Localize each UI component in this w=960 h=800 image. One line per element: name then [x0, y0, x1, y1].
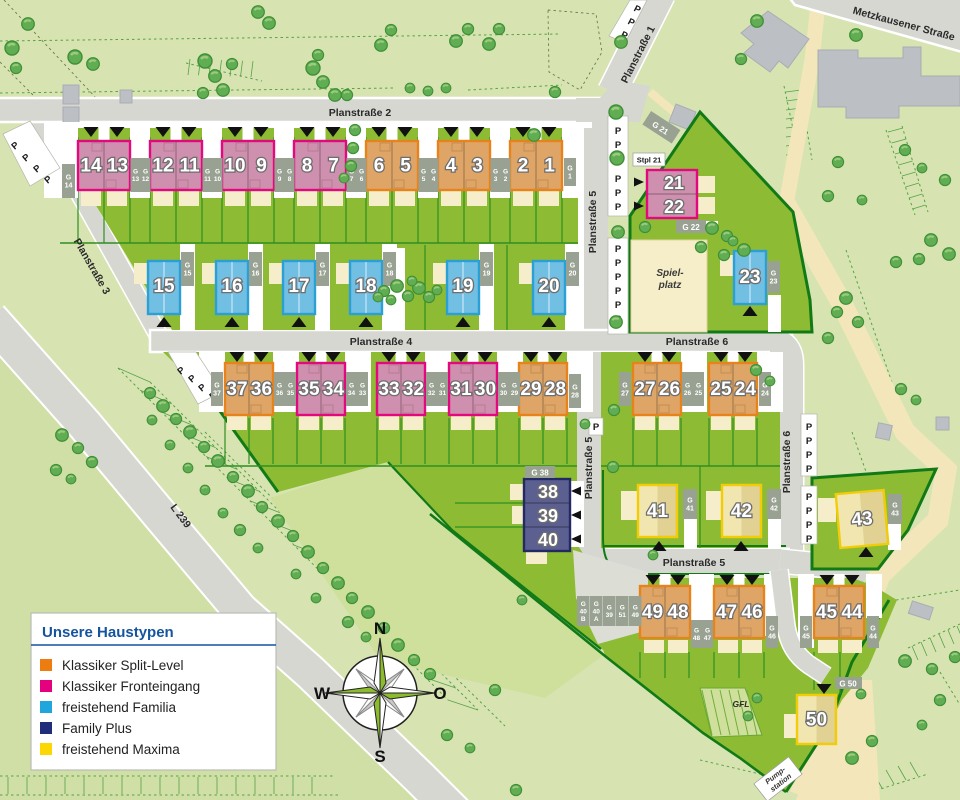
svg-text:G: G	[567, 165, 573, 172]
svg-text:G: G	[607, 605, 612, 612]
svg-text:G: G	[484, 262, 490, 269]
svg-text:P: P	[615, 272, 622, 283]
svg-text:G: G	[512, 383, 517, 390]
svg-text:4: 4	[446, 156, 457, 177]
svg-text:47: 47	[704, 635, 712, 642]
svg-text:42: 42	[770, 505, 778, 512]
svg-text:P: P	[615, 202, 622, 213]
svg-text:G: G	[214, 382, 220, 389]
svg-text:G: G	[633, 605, 638, 612]
svg-text:P: P	[615, 126, 622, 137]
svg-text:5: 5	[400, 156, 411, 177]
svg-text:31: 31	[450, 379, 472, 400]
svg-text:G: G	[594, 601, 599, 608]
svg-text:27: 27	[621, 390, 629, 397]
svg-text:38: 38	[538, 482, 558, 502]
svg-text:Planstraße 6: Planstraße 6	[666, 336, 729, 348]
svg-text:G: G	[687, 497, 693, 504]
svg-text:G: G	[769, 626, 775, 633]
svg-text:11: 11	[179, 156, 200, 177]
svg-text:P: P	[806, 520, 813, 531]
svg-text:G: G	[205, 169, 210, 176]
svg-text:Planstraße 5: Planstraße 5	[663, 557, 726, 569]
svg-text:Unsere Haustypen: Unsere Haustypen	[42, 624, 174, 641]
svg-text:26: 26	[684, 390, 692, 397]
svg-text:3: 3	[472, 156, 483, 177]
svg-text:23: 23	[770, 278, 778, 285]
svg-text:P: P	[806, 464, 813, 475]
svg-text:49: 49	[632, 612, 640, 619]
svg-text:P: P	[615, 258, 622, 269]
svg-text:freistehend Maxima: freistehend Maxima	[62, 742, 180, 757]
svg-text:18: 18	[355, 276, 376, 297]
svg-text:P: P	[615, 300, 622, 311]
svg-text:Spiel-: Spiel-	[656, 268, 684, 279]
svg-text:18: 18	[386, 270, 394, 277]
svg-text:41: 41	[686, 505, 694, 512]
svg-text:13: 13	[107, 156, 128, 177]
svg-text:32: 32	[403, 379, 424, 400]
svg-text:P: P	[615, 188, 622, 199]
svg-text:19: 19	[483, 270, 491, 277]
svg-text:17: 17	[288, 276, 309, 297]
svg-text:G: G	[685, 383, 690, 390]
svg-text:50: 50	[806, 710, 827, 731]
svg-text:G: G	[66, 174, 72, 181]
svg-text:36: 36	[276, 390, 284, 397]
svg-text:29: 29	[511, 390, 519, 397]
svg-text:G: G	[185, 262, 191, 269]
svg-text:P: P	[806, 422, 813, 433]
svg-text:14: 14	[65, 182, 73, 189]
svg-text:32: 32	[428, 390, 436, 397]
svg-text:G 22: G 22	[682, 223, 700, 232]
svg-text:16: 16	[252, 270, 260, 277]
svg-text:GFL: GFL	[733, 699, 750, 709]
svg-text:Planstraße 5: Planstraße 5	[583, 437, 595, 500]
svg-text:G 38: G 38	[531, 469, 549, 478]
svg-text:31: 31	[439, 390, 447, 397]
svg-text:30: 30	[500, 390, 508, 397]
svg-text:G: G	[431, 169, 436, 176]
svg-text:Planstraße 2: Planstraße 2	[329, 107, 392, 119]
svg-text:G: G	[803, 626, 809, 633]
svg-text:48: 48	[693, 635, 701, 642]
svg-text:26: 26	[659, 379, 680, 400]
svg-text:G: G	[133, 169, 138, 176]
svg-text:G: G	[501, 383, 506, 390]
svg-text:8: 8	[302, 156, 313, 177]
svg-text:34: 34	[348, 390, 356, 397]
svg-text:P: P	[806, 436, 813, 447]
svg-text:40: 40	[538, 530, 558, 550]
svg-text:15: 15	[184, 270, 192, 277]
svg-text:G: G	[320, 262, 326, 269]
svg-text:39: 39	[606, 612, 614, 619]
svg-text:10: 10	[224, 156, 245, 177]
svg-text:11: 11	[204, 176, 211, 183]
svg-text:G: G	[277, 383, 282, 390]
svg-text:G: G	[215, 169, 220, 176]
svg-text:G: G	[694, 628, 699, 635]
svg-text:9: 9	[278, 176, 282, 183]
svg-text:G: G	[771, 497, 777, 504]
svg-text:33: 33	[378, 379, 399, 400]
svg-text:48: 48	[667, 602, 688, 623]
svg-text:P: P	[593, 422, 600, 433]
svg-text:37: 37	[213, 390, 221, 397]
svg-text:17: 17	[319, 270, 327, 277]
svg-text:freistehend Familia: freistehend Familia	[62, 700, 177, 715]
svg-text:G: G	[387, 262, 393, 269]
svg-text:G: G	[429, 383, 434, 390]
svg-text:G: G	[359, 169, 364, 176]
svg-text:G: G	[870, 626, 876, 633]
svg-text:Planstraße 5: Planstraße 5	[587, 191, 599, 254]
svg-text:43: 43	[851, 508, 874, 531]
svg-text:41: 41	[647, 501, 669, 522]
svg-text:51: 51	[619, 612, 627, 619]
svg-text:Planstraße 4: Planstraße 4	[350, 336, 413, 348]
svg-text:G: G	[705, 628, 710, 635]
svg-text:1: 1	[544, 156, 555, 177]
svg-text:G: G	[421, 169, 426, 176]
svg-text:1: 1	[568, 173, 572, 180]
svg-text:Planstraße 6: Planstraße 6	[781, 431, 793, 494]
svg-text:27: 27	[634, 379, 655, 400]
svg-text:8: 8	[288, 176, 292, 183]
svg-text:22: 22	[664, 197, 684, 217]
svg-text:36: 36	[251, 379, 272, 400]
svg-text:P: P	[615, 174, 622, 185]
svg-text:N: N	[374, 619, 386, 638]
svg-text:35: 35	[287, 390, 295, 397]
svg-text:G: G	[570, 262, 576, 269]
svg-text:24: 24	[735, 379, 757, 400]
svg-text:P: P	[615, 286, 622, 297]
svg-text:G: G	[360, 383, 365, 390]
svg-text:20: 20	[538, 276, 559, 297]
svg-text:47: 47	[716, 602, 737, 623]
svg-text:G: G	[696, 383, 701, 390]
svg-text:14: 14	[80, 156, 102, 177]
svg-text:28: 28	[571, 392, 579, 399]
svg-text:P: P	[615, 244, 622, 255]
svg-text:7: 7	[350, 176, 354, 183]
svg-text:O: O	[433, 684, 446, 703]
svg-text:6: 6	[360, 176, 364, 183]
svg-text:platz: platz	[658, 280, 682, 291]
svg-text:P: P	[615, 140, 622, 151]
svg-text:5: 5	[422, 176, 426, 183]
svg-text:25: 25	[695, 390, 703, 397]
svg-text:G 50: G 50	[839, 680, 857, 689]
svg-text:7: 7	[328, 156, 339, 177]
svg-text:49: 49	[642, 602, 663, 623]
svg-text:Stpl 21: Stpl 21	[637, 156, 662, 165]
svg-text:34: 34	[323, 379, 345, 400]
svg-text:G: G	[440, 383, 445, 390]
svg-text:19: 19	[452, 276, 473, 297]
svg-text:P: P	[806, 492, 813, 503]
svg-text:42: 42	[731, 501, 752, 522]
svg-text:G: G	[892, 502, 898, 509]
svg-text:40: 40	[580, 608, 588, 615]
svg-text:Family Plus: Family Plus	[62, 721, 132, 736]
svg-text:35: 35	[298, 379, 320, 400]
svg-text:10: 10	[214, 176, 222, 183]
svg-text:12: 12	[152, 156, 173, 177]
svg-text:W: W	[314, 684, 331, 703]
svg-text:2: 2	[504, 176, 508, 183]
svg-text:A: A	[594, 616, 599, 623]
svg-text:G: G	[287, 169, 292, 176]
svg-text:G: G	[581, 601, 586, 608]
svg-text:G: G	[253, 262, 259, 269]
svg-text:20: 20	[569, 270, 577, 277]
svg-text:24: 24	[761, 390, 769, 397]
svg-text:Klassiker Split-Level: Klassiker Split-Level	[62, 658, 184, 673]
svg-text:33: 33	[359, 390, 367, 397]
svg-text:25: 25	[710, 379, 732, 400]
svg-text:45: 45	[816, 602, 838, 623]
svg-text:39: 39	[538, 506, 558, 526]
svg-text:G: G	[288, 383, 293, 390]
svg-text:G: G	[143, 169, 148, 176]
svg-text:9: 9	[256, 156, 267, 177]
svg-text:3: 3	[494, 176, 498, 183]
svg-text:12: 12	[142, 176, 150, 183]
svg-text:23: 23	[739, 267, 760, 288]
svg-text:G: G	[349, 383, 354, 390]
svg-text:2: 2	[518, 156, 529, 177]
svg-text:P: P	[806, 450, 813, 461]
svg-text:37: 37	[226, 379, 247, 400]
svg-text:28: 28	[545, 379, 566, 400]
svg-text:G: G	[620, 605, 625, 612]
svg-text:44: 44	[869, 634, 877, 641]
svg-text:G: G	[622, 382, 628, 389]
svg-text:40: 40	[593, 608, 601, 615]
svg-text:G: G	[493, 169, 498, 176]
svg-text:16: 16	[221, 276, 242, 297]
svg-text:15: 15	[153, 276, 175, 297]
svg-text:43: 43	[891, 511, 899, 518]
svg-text:46: 46	[768, 634, 776, 641]
svg-text:21: 21	[664, 173, 684, 193]
svg-text:4: 4	[432, 176, 436, 183]
svg-text:30: 30	[475, 379, 496, 400]
svg-text:6: 6	[374, 156, 385, 177]
svg-text:45: 45	[802, 634, 810, 641]
svg-text:44: 44	[841, 602, 863, 623]
svg-text:G: G	[277, 169, 282, 176]
svg-text:B: B	[581, 616, 586, 623]
svg-text:13: 13	[132, 176, 140, 183]
svg-text:46: 46	[741, 602, 762, 623]
svg-text:29: 29	[520, 379, 541, 400]
svg-text:G: G	[572, 384, 578, 391]
svg-text:G: G	[503, 169, 508, 176]
svg-text:P: P	[806, 534, 813, 545]
svg-text:G: G	[771, 270, 777, 277]
svg-text:Klassiker Fronteingang: Klassiker Fronteingang	[62, 679, 200, 694]
svg-text:P: P	[806, 506, 813, 517]
svg-text:S: S	[374, 747, 385, 766]
